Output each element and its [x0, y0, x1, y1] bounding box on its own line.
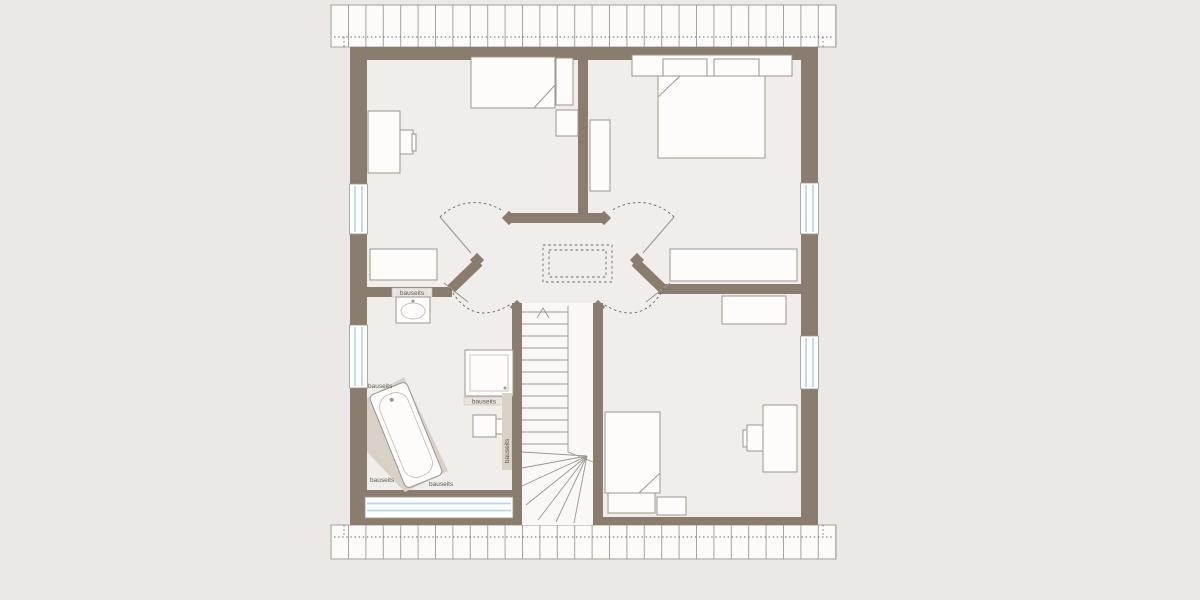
chair-back: [743, 430, 747, 447]
exterior-wall-right: [801, 47, 818, 525]
bauseits-label: bauseits: [400, 290, 425, 297]
pillow: [663, 59, 707, 77]
bauseits-label-vertical: bauseits: [504, 438, 511, 463]
window-left-upper: [350, 184, 368, 234]
bed-footboard: [608, 493, 655, 513]
toilet: [473, 415, 496, 437]
wardrobe: [590, 120, 610, 191]
dresser: [722, 296, 786, 324]
floor-plan-canvas: bauseits bauseits bauseits bauseits baus…: [0, 0, 1200, 600]
chair: [400, 130, 413, 154]
bauseits-label: bauseits: [472, 399, 497, 406]
exterior-wall-left: [350, 47, 367, 525]
wall-hall-top: [510, 213, 604, 223]
side-table: [657, 497, 686, 515]
wall-stairwell-west: [512, 303, 522, 525]
wall-stairwell-east: [593, 303, 603, 517]
wardrobe: [556, 58, 573, 105]
sideboard: [670, 249, 797, 281]
nightstand: [556, 110, 578, 136]
double-bed: [658, 76, 765, 158]
desk: [763, 405, 797, 472]
washbasin-faucet: [412, 300, 415, 303]
chair-back: [412, 134, 416, 151]
exterior-wall-bottom-right: [593, 517, 818, 525]
window-bathroom-south: [365, 497, 513, 518]
roof-overhang-bottom: [331, 525, 836, 559]
roof-overhang-top: [331, 5, 836, 47]
window-left-lower: [350, 325, 368, 388]
wall-right-rooms-divider: [658, 284, 801, 294]
headboard-shelf: [632, 55, 792, 76]
chair: [747, 425, 763, 451]
wall-top-rooms-divider: [578, 58, 588, 218]
dresser: [370, 249, 437, 280]
staircase: [522, 303, 593, 525]
desk: [368, 111, 400, 173]
roof-hatch-lines-bottom: [331, 525, 836, 559]
shower-drain: [504, 387, 507, 390]
window-right-lower: [801, 336, 819, 389]
roof-hatch-lines-top: [331, 5, 836, 47]
bauseits-label: bauseits: [429, 481, 454, 488]
window-right-upper: [801, 183, 819, 234]
bauseits-label: bauseits: [370, 477, 395, 484]
pillow: [714, 59, 759, 77]
bauseits-label: bauseits: [368, 383, 393, 390]
